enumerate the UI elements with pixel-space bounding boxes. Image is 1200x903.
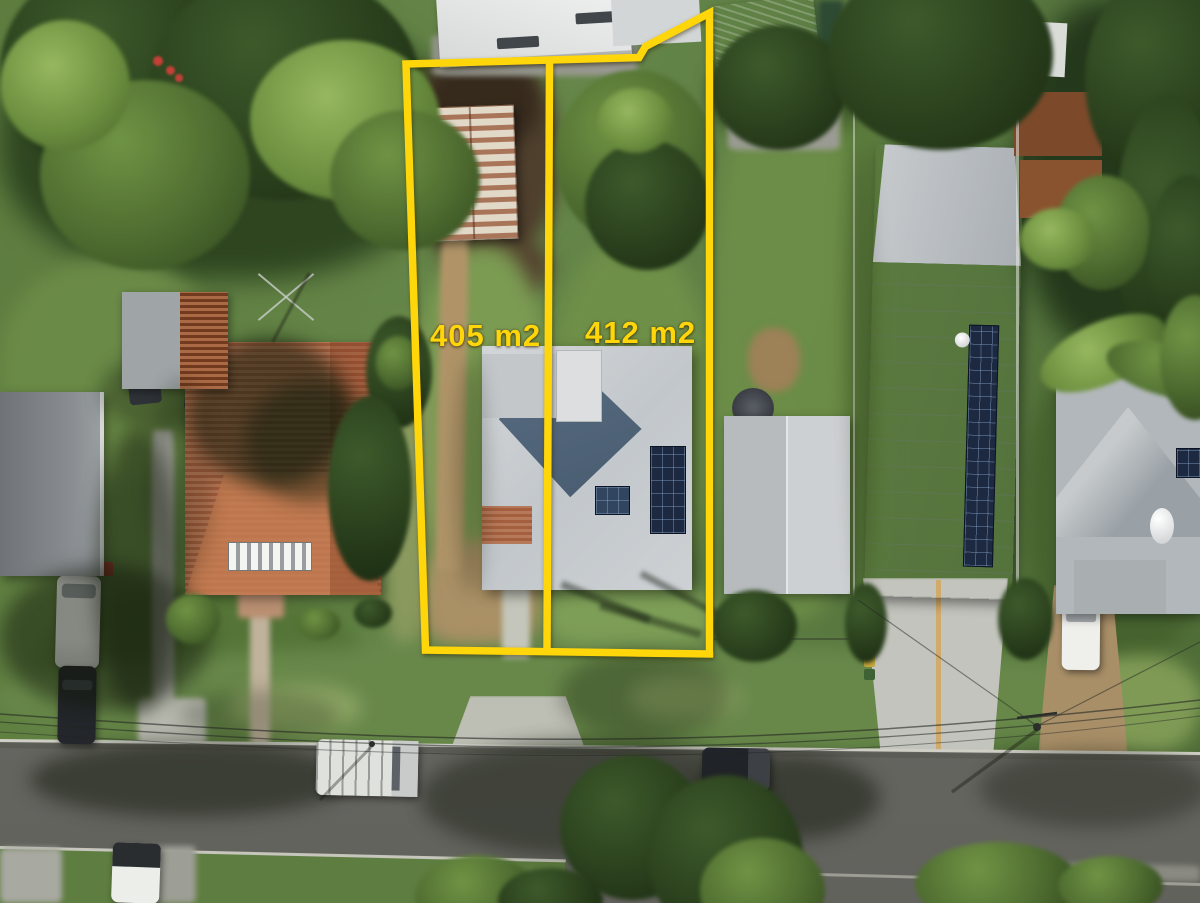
roof-deck <box>1074 560 1166 614</box>
ute-tray <box>112 842 161 868</box>
neighbour-house-roof <box>724 416 850 594</box>
solar-panels <box>1176 448 1200 478</box>
house-shadow <box>148 378 213 583</box>
aerial-photo: 405 m2 412 m2 <box>0 0 1200 903</box>
bush <box>845 583 887 663</box>
roof-wing <box>556 350 602 422</box>
red-flowers <box>175 74 183 82</box>
garden-shed <box>122 292 228 389</box>
roof-ridge <box>786 416 788 594</box>
striped-awning <box>228 542 312 571</box>
solar-panels <box>650 446 686 534</box>
fence-line <box>1016 58 1019 598</box>
white-ute <box>111 842 161 903</box>
solar-panels <box>595 486 630 515</box>
roof-extension <box>482 354 556 418</box>
tree-shadow <box>30 742 350 817</box>
tree <box>328 396 412 581</box>
red-flowers <box>166 66 175 75</box>
roof-main-section <box>864 262 1021 600</box>
bush <box>166 594 220 644</box>
windshield <box>392 747 401 791</box>
tree-shadow <box>560 650 730 740</box>
palm-tree <box>0 20 130 150</box>
dirt-patch <box>748 328 800 392</box>
concrete-path <box>502 586 530 658</box>
solar-panel-strip <box>963 325 999 568</box>
shed-roof-rust <box>180 292 228 389</box>
building-shadow <box>850 148 875 593</box>
long-building-roof <box>864 144 1024 600</box>
bush <box>998 578 1053 660</box>
clothesline-shadow <box>271 272 310 342</box>
left-house-roof <box>0 392 104 576</box>
main-house-roof <box>482 346 692 590</box>
porch-roof <box>482 506 532 544</box>
white-garage-roof <box>436 0 632 68</box>
tree-shadow <box>980 748 1200 828</box>
lot-right-area-label: 412 m2 <box>585 315 696 351</box>
bush <box>298 608 340 640</box>
wheelie-bin-green <box>864 669 875 680</box>
shed-roof-gray <box>122 292 180 389</box>
utility-truck <box>315 739 418 797</box>
driveway-stripe <box>936 580 941 752</box>
lot-left-area-label: 405 m2 <box>430 318 541 354</box>
bush <box>354 598 392 628</box>
roof-vent <box>497 36 540 50</box>
tree <box>585 140 710 270</box>
concrete-corner <box>0 848 62 903</box>
roof-upper-section <box>873 144 1024 266</box>
house-shadow <box>455 358 487 593</box>
water-heater <box>1150 508 1174 544</box>
red-flowers <box>153 56 163 66</box>
bush <box>1020 208 1095 270</box>
tree <box>712 25 847 150</box>
roof-vent <box>575 11 616 24</box>
palm-tree <box>376 336 420 390</box>
hedge <box>712 590 797 662</box>
light-roof <box>611 0 702 46</box>
tree <box>598 88 673 153</box>
tree-shadow <box>180 690 340 740</box>
tree <box>330 110 480 250</box>
